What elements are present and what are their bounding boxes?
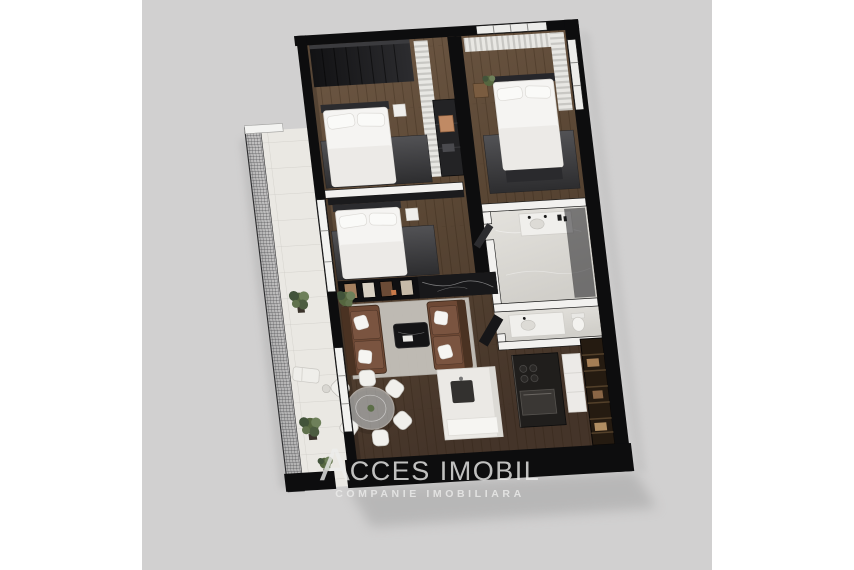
pillow <box>357 113 385 126</box>
floorplan-illustration <box>142 0 712 570</box>
balcony-end-wall <box>284 471 336 492</box>
vanity <box>509 312 566 337</box>
pillow <box>434 311 448 326</box>
decor-box <box>439 115 455 132</box>
duvet <box>339 241 407 279</box>
picture-frame <box>400 280 414 296</box>
nightstand <box>393 104 406 117</box>
island-shelf <box>447 417 499 436</box>
pillow <box>369 213 397 225</box>
lounge-chair <box>293 367 320 384</box>
floorplan-photo: ACCES IMOBIL COMPANIE IMOBILIARA <box>142 0 712 570</box>
shelf-item <box>594 422 607 431</box>
sofa-left <box>341 305 387 375</box>
fireplace-glow <box>391 290 397 295</box>
island-sink <box>450 380 475 403</box>
pillow <box>358 350 372 364</box>
sofa-right <box>427 300 473 370</box>
duvet <box>498 125 563 171</box>
duvet <box>328 145 397 187</box>
page-background: ACCES IMOBIL COMPANIE IMOBILIARA <box>0 0 854 570</box>
books <box>442 143 455 152</box>
book <box>402 335 413 342</box>
picture-frame <box>362 282 376 298</box>
shelf-item <box>587 358 600 367</box>
nightstand <box>405 208 418 221</box>
shelf-item <box>592 390 603 399</box>
pillow <box>525 86 551 99</box>
